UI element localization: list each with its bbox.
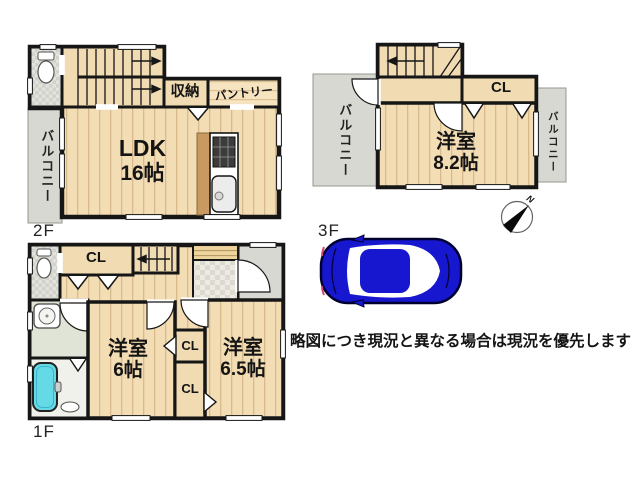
ldk-name: LDK xyxy=(80,136,205,162)
landing-3f xyxy=(378,77,462,103)
closet-bottom-label: CL xyxy=(175,382,205,397)
car-top-view xyxy=(321,235,461,307)
toilet-fixture-1f xyxy=(37,249,51,278)
storage-label: 収納 xyxy=(162,84,208,100)
bedroom1-name: 洋室 xyxy=(86,338,170,360)
washbasin-1f xyxy=(34,304,60,328)
balcony-3f-right-label: バルコニー xyxy=(539,100,565,184)
bedroom1-label: 洋室 6帖 xyxy=(86,338,170,382)
floorplan-canvas: LDK 16帖 収納 パントリー バルコニー 2F 洋室 8.2帖 CL バルコ… xyxy=(0,0,640,480)
floor-3f-tag: 3F xyxy=(318,221,340,240)
bedroom2-name: 洋室 xyxy=(201,337,285,359)
bathtub-1f xyxy=(33,363,61,411)
car-roof xyxy=(360,249,410,293)
floor-1f-tag: 1F xyxy=(33,422,55,441)
bath-drain-1f xyxy=(61,402,79,412)
kitchen-sink xyxy=(212,176,236,212)
balcony-2f-label: バルコニー xyxy=(31,118,61,214)
bedroom-3f-name: 洋室 xyxy=(406,131,506,153)
bedroom2-size: 6.5帖 xyxy=(201,359,285,380)
floor-2f-tag: 2F xyxy=(33,221,55,240)
compass xyxy=(502,202,533,234)
floor-2f-plan xyxy=(28,45,282,223)
genkan-1f xyxy=(193,260,238,300)
bedroom-3f-size: 8.2帖 xyxy=(406,153,506,174)
balcony-3f-left-label: バルコニー xyxy=(329,92,359,188)
bedroom-3f-label: 洋室 8.2帖 xyxy=(406,131,506,175)
toilet-door-opening-1f xyxy=(57,253,63,273)
hall-closet-label: CL xyxy=(74,250,118,267)
toilet-fixture-2f xyxy=(38,52,54,83)
shoe-cabinet-1f xyxy=(193,245,238,260)
bedroom1-size: 6帖 xyxy=(86,360,170,381)
bedroom2-label: 洋室 6.5帖 xyxy=(201,337,285,381)
ldk-label: LDK 16帖 xyxy=(80,136,205,185)
closet-3f-label: CL xyxy=(476,80,526,97)
stove xyxy=(213,137,235,167)
disclaimer-text: 略図につき現況と異なる場合は現況を優先します xyxy=(290,329,631,351)
floor-1f-plan xyxy=(28,243,286,421)
ldk-size: 16帖 xyxy=(80,162,205,186)
